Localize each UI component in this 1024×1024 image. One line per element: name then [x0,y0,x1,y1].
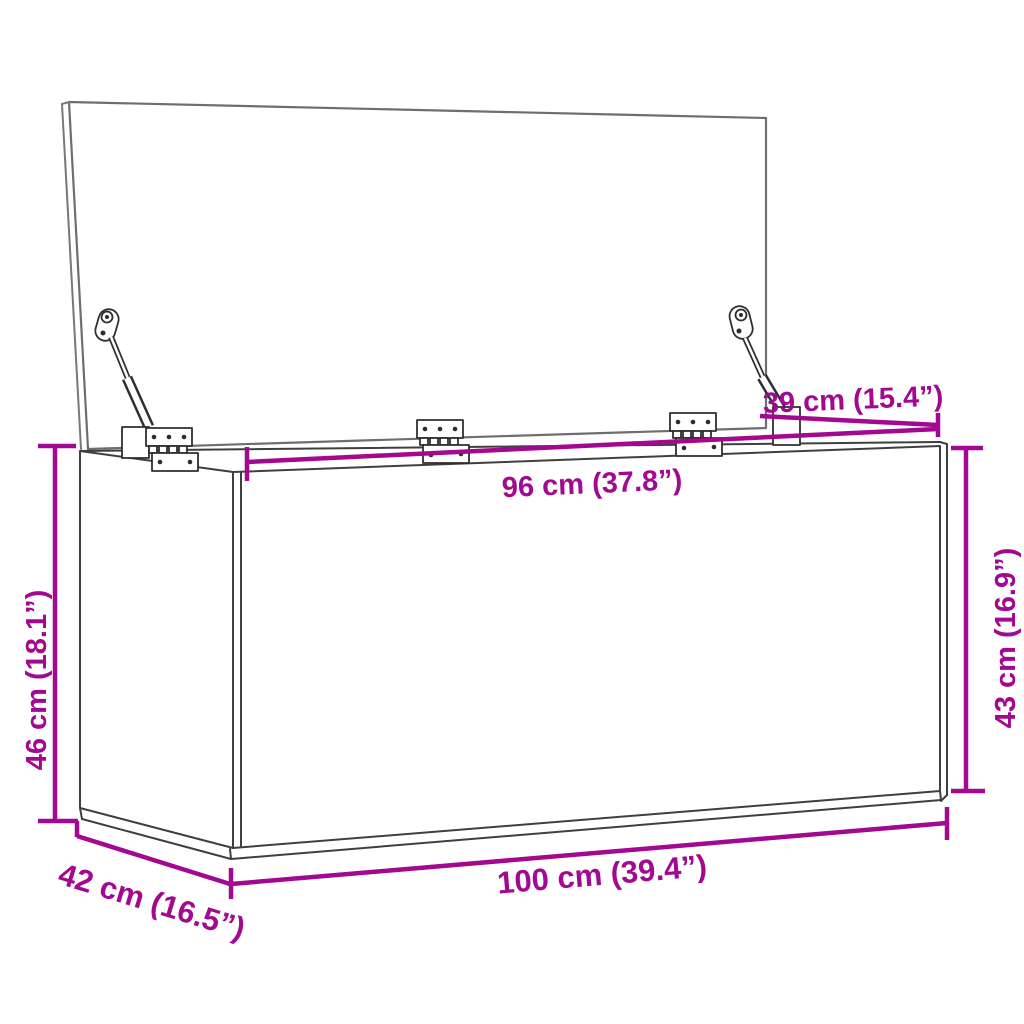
hinge-right [670,413,722,456]
label-depth: 42 cm (16.5”) [54,856,249,946]
box-left-face [80,451,233,848]
label-lid-depth: 39 cm (15.4”) [762,380,944,420]
label-width: 100 cm (39.4”) [496,848,708,900]
box-body [80,442,947,859]
storage-box-dimension-diagram: 39 cm (15.4”) 96 cm (37.8”) 43 cm (16.9”… [0,0,1024,1024]
label-height-right: 43 cm (16.9”) [990,548,1022,729]
lid-panel [62,102,766,449]
hinge-center [417,420,469,463]
label-height-left: 46 cm (18.1”) [21,590,53,771]
box-front-face [233,446,940,848]
strut-foot-bracket-icon [122,427,149,458]
diagram-canvas: 39 cm (15.4”) 96 cm (37.8”) 43 cm (16.9”… [0,0,1024,1024]
dimension-line-height-right [951,448,985,791]
